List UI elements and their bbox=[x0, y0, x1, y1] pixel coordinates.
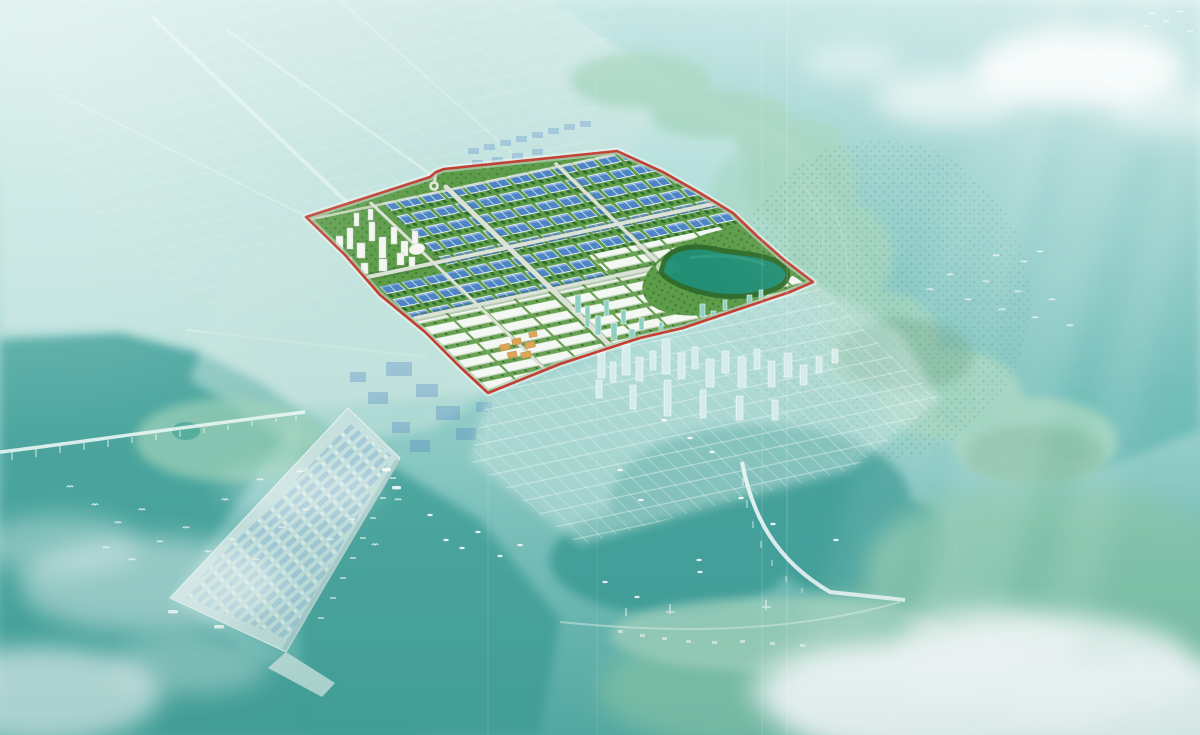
masterplan-rendering bbox=[0, 0, 1200, 735]
bottom-tint bbox=[0, 0, 1200, 735]
